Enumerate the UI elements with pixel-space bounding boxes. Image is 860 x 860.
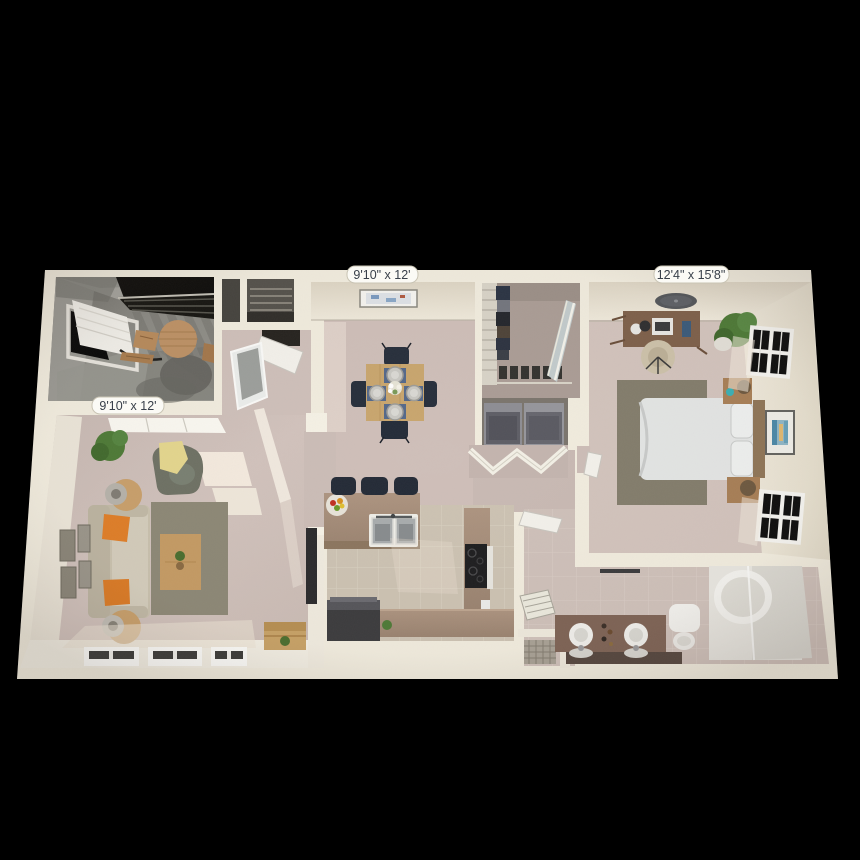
svg-text:12'4" x 15'8": 12'4" x 15'8" (657, 268, 726, 282)
svg-text:9'10" x 12': 9'10" x 12' (99, 399, 156, 413)
svg-text:9'10" x 12': 9'10" x 12' (353, 268, 410, 282)
